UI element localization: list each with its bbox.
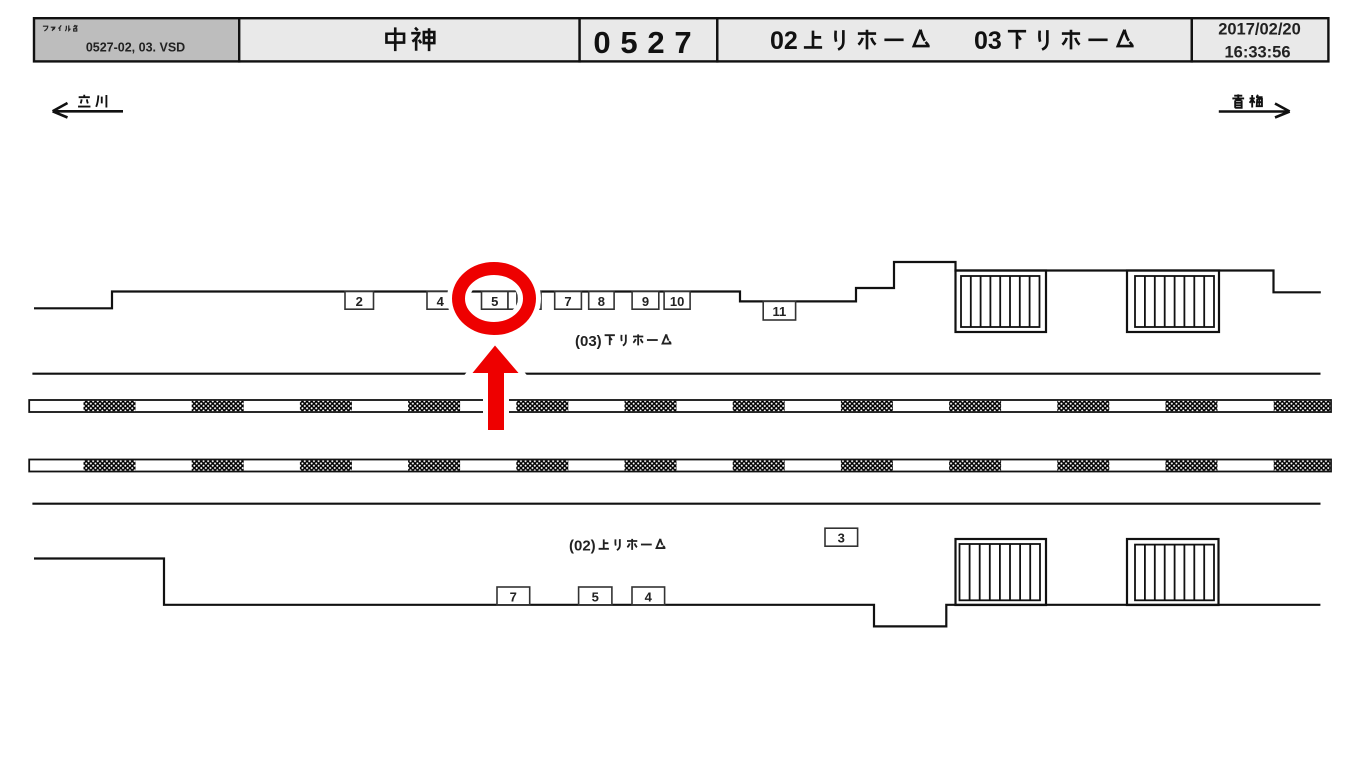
svg-text:0527-02, 03. VSD: 0527-02, 03. VSD	[86, 41, 185, 55]
svg-text:7: 7	[674, 25, 691, 60]
svg-text:5: 5	[620, 25, 637, 60]
svg-text:03: 03	[974, 27, 1002, 55]
svg-text:4: 4	[437, 294, 445, 309]
svg-text:2: 2	[647, 25, 664, 60]
svg-text:9: 9	[642, 294, 649, 309]
svg-text:4: 4	[645, 589, 653, 604]
svg-text:16:33:56: 16:33:56	[1224, 44, 1290, 62]
svg-text:3: 3	[838, 531, 845, 546]
svg-text:5: 5	[491, 294, 498, 309]
svg-text:8: 8	[598, 294, 605, 309]
svg-text:(02): (02)	[569, 538, 596, 555]
svg-text:02: 02	[770, 27, 798, 55]
svg-text:0: 0	[593, 25, 610, 60]
svg-text:2: 2	[356, 294, 363, 309]
svg-text:7: 7	[510, 589, 517, 604]
svg-text:(03): (03)	[575, 333, 602, 350]
svg-text:5: 5	[592, 589, 599, 604]
svg-text:7: 7	[564, 294, 571, 309]
svg-text:2017/02/20: 2017/02/20	[1218, 21, 1301, 39]
svg-text:10: 10	[670, 294, 684, 309]
svg-text:11: 11	[773, 304, 787, 319]
